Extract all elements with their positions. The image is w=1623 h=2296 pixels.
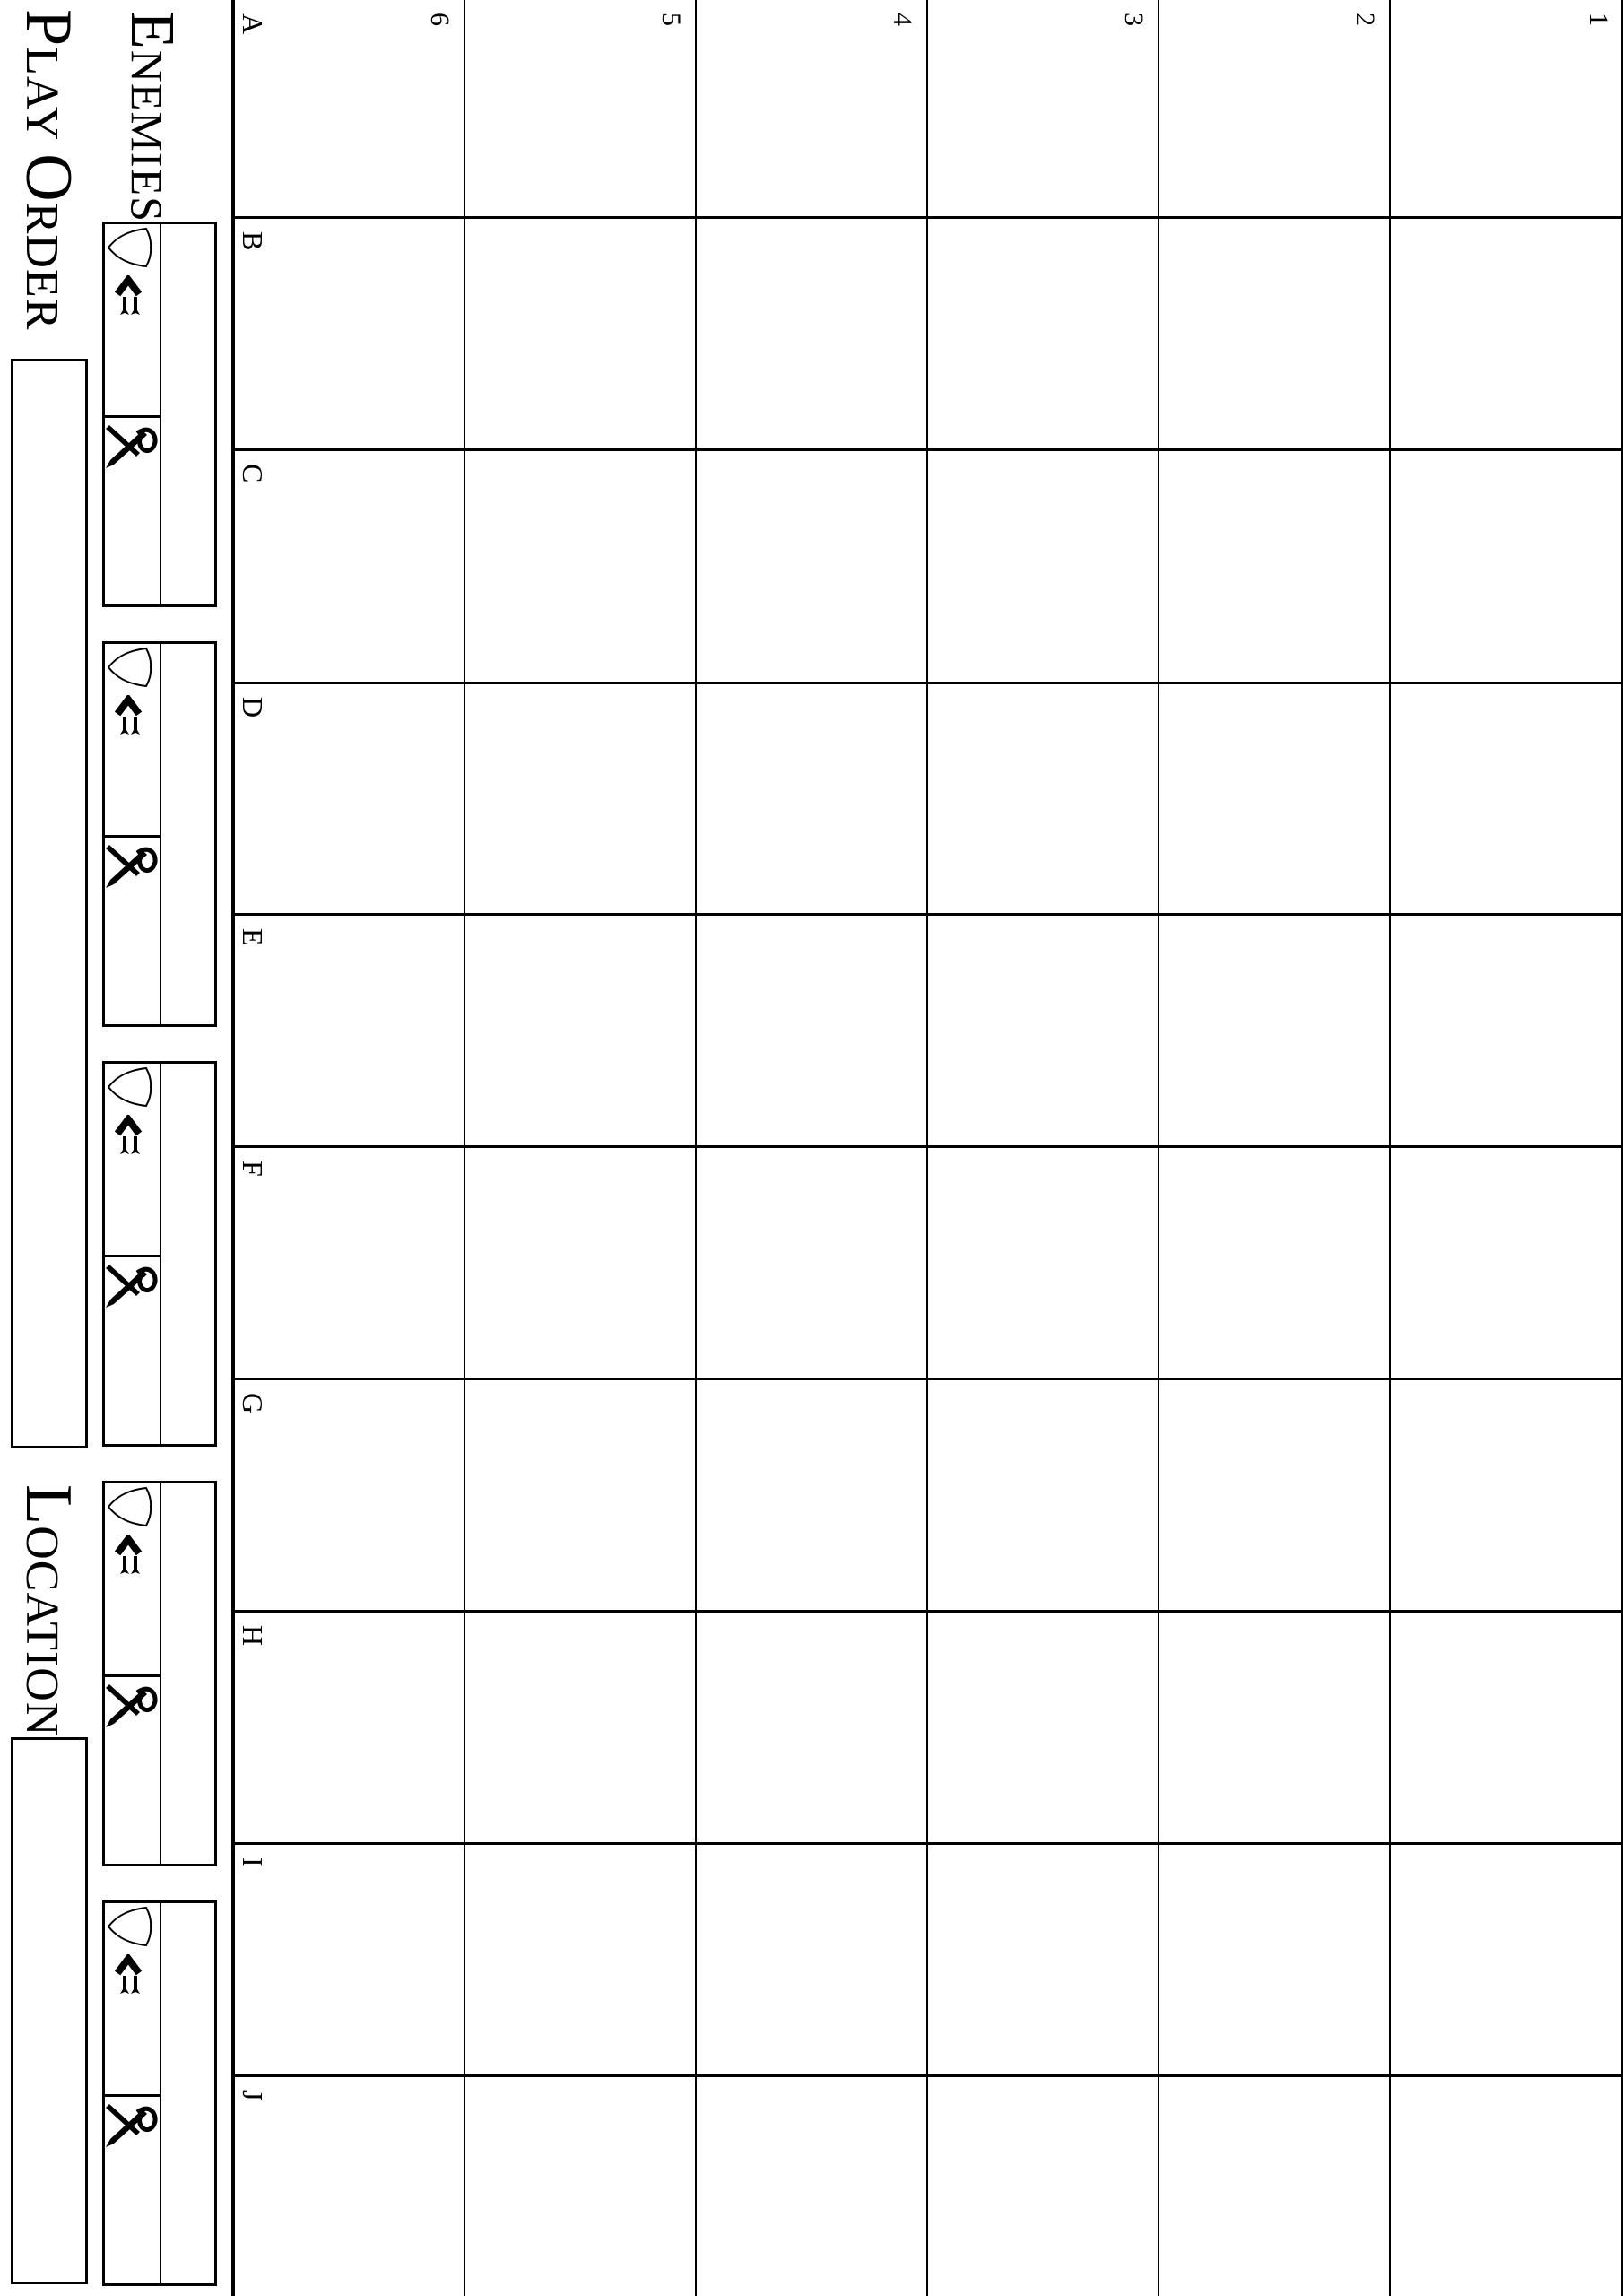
grid-column-label: C [239, 464, 267, 483]
attack-sword-icon [100, 1263, 158, 1309]
enemy-box-divider [160, 224, 161, 604]
grid-column-line [231, 448, 1623, 451]
grid-column-label: I [239, 1857, 267, 1867]
grid-column-line [231, 2074, 1623, 2077]
speed-arrow-icon [110, 1115, 142, 1157]
enemy-stat-box [102, 222, 217, 607]
enemy-stat-strip [105, 1483, 160, 1864]
grid-column-label: J [239, 2090, 267, 2100]
grid-row-line [464, 0, 465, 2296]
play-order-title-initial-1: P [12, 9, 85, 47]
enemy-stat-strip-divider [105, 415, 160, 418]
grid-row-label: 6 [426, 13, 453, 26]
enemy-stat-box [102, 1061, 217, 1447]
shield-icon [101, 1486, 154, 1527]
grid-column-label: B [239, 231, 267, 250]
enemy-stat-strip [105, 1903, 160, 2283]
grid-column-label: H [239, 1625, 267, 1646]
enemy-stat-strip-divider [105, 1255, 160, 1257]
location-box [11, 1737, 88, 2284]
enemies-title-rest: NEMIES [122, 50, 172, 222]
speed-arrow-icon [110, 1535, 142, 1577]
enemies-title: ENEMIES [120, 11, 183, 222]
game-sheet-page: A B C D E F G H I J 1 2 3 4 5 6 ENEMIES [0, 0, 1623, 2296]
grid-row-label: 2 [1351, 13, 1378, 26]
grid-column-line [231, 682, 1623, 684]
grid-row-line [1158, 0, 1159, 2296]
battle-grid: A B C D E F G H I J 1 2 3 4 5 6 [231, 0, 1623, 2296]
enemy-stat-box [102, 1481, 217, 1866]
grid-bottom-border [231, 0, 235, 2296]
grid-row-label: 4 [889, 13, 916, 26]
shield-icon [101, 1066, 154, 1108]
grid-column-line [231, 216, 1623, 219]
location-title-initial: L [12, 1484, 85, 1526]
enemy-stat-box [102, 1900, 217, 2286]
enemy-stat-box [102, 641, 217, 1027]
enemy-name-area [161, 1064, 214, 1444]
play-order-title-initial-2: O [12, 153, 85, 202]
play-order-title-rest-2: RDER [16, 203, 67, 331]
grid-row-line [695, 0, 697, 2296]
grid-column-label: E [239, 928, 267, 946]
grid-column-label: G [239, 1393, 267, 1413]
enemy-stat-strip [105, 1064, 160, 1444]
grid-column-label: F [239, 1161, 267, 1177]
enemy-box-divider [160, 644, 161, 1024]
enemy-stat-strip-divider [105, 1674, 160, 1677]
enemies-title-initial: E [117, 11, 187, 50]
play-order-title: PLAYORDER [15, 9, 82, 330]
shield-icon [101, 647, 154, 688]
grid-column-line [231, 1842, 1623, 1845]
attack-sword-icon [100, 423, 158, 470]
grid-column-line [231, 913, 1623, 916]
enemy-name-area [161, 1903, 214, 2283]
play-order-box [11, 359, 88, 1448]
enemy-box-divider [160, 1483, 161, 1864]
enemy-stat-strip [105, 644, 160, 1024]
speed-arrow-icon [110, 695, 142, 737]
grid-column-line [231, 1145, 1623, 1148]
grid-row-label: 5 [657, 13, 684, 26]
grid-column-line [231, 1610, 1623, 1613]
enemy-stat-strip [105, 224, 160, 604]
enemy-name-area [161, 644, 214, 1024]
shield-icon [101, 1906, 154, 1947]
shield-icon [101, 227, 154, 268]
play-order-title-rest-1: LAY [16, 47, 67, 141]
enemy-box-divider [160, 1064, 161, 1444]
grid-column-label: A [239, 13, 267, 34]
attack-sword-icon [100, 843, 158, 890]
enemy-box-divider [160, 1903, 161, 2283]
grid-row-label: 3 [1120, 13, 1147, 26]
grid-row-label: 1 [1584, 13, 1611, 26]
location-title-rest: OCATION [16, 1526, 67, 1736]
enemy-name-area [161, 1483, 214, 1864]
attack-sword-icon [100, 1683, 158, 1729]
grid-column-line [231, 1378, 1623, 1380]
enemy-stat-strip-divider [105, 835, 160, 838]
grid-row-line [1389, 0, 1391, 2296]
grid-row-line [926, 0, 928, 2296]
grid-column-label: D [239, 697, 267, 717]
enemy-name-area [161, 224, 214, 604]
enemy-stat-strip-divider [105, 2094, 160, 2097]
speed-arrow-icon [110, 275, 142, 317]
location-title: LOCATION [15, 1484, 82, 1736]
speed-arrow-icon [110, 1954, 142, 1996]
attack-sword-icon [100, 2102, 158, 2149]
